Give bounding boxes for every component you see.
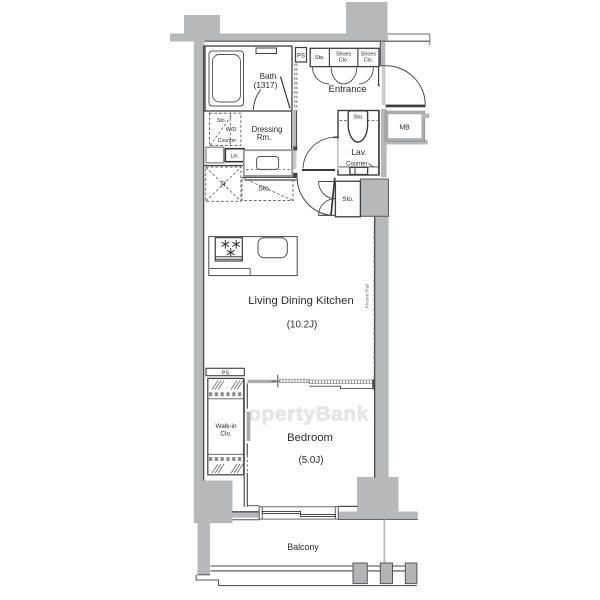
svg-text:Clo.: Clo. — [364, 58, 374, 64]
svg-text:(5.0J): (5.0J) — [298, 455, 323, 466]
svg-text:Sto.: Sto. — [217, 118, 226, 124]
svg-text:Lin.: Lin. — [231, 153, 239, 159]
svg-text:W/D: W/D — [226, 127, 237, 133]
svg-text:Walk-in: Walk-in — [215, 423, 237, 430]
svg-text:Rm.: Rm. — [257, 133, 271, 142]
svg-text:Living Dining Kitchen: Living Dining Kitchen — [248, 295, 354, 307]
svg-text:Sto.: Sto. — [342, 196, 353, 203]
svg-text:MB: MB — [399, 125, 410, 132]
svg-text:Counter: Counter — [218, 138, 237, 144]
svg-text:Balcony: Balcony — [287, 542, 319, 552]
svg-text:Bedroom: Bedroom — [287, 432, 333, 444]
svg-text:PS: PS — [222, 370, 230, 376]
svg-text:(1317): (1317) — [254, 81, 278, 90]
svg-text:PropertyBank: PropertyBank — [225, 403, 369, 426]
svg-text:R: R — [221, 182, 226, 189]
svg-text:PS: PS — [297, 54, 305, 60]
svg-text:Entrance: Entrance — [328, 84, 366, 95]
svg-text:Clo.: Clo. — [220, 431, 232, 438]
svg-text:Clo.: Clo. — [339, 58, 349, 64]
svg-text:Sto.: Sto. — [315, 55, 325, 61]
svg-text:(10.2J): (10.2J) — [287, 319, 318, 330]
svg-text:Sto.: Sto. — [258, 186, 271, 193]
svg-text:Lav.: Lav. — [351, 147, 366, 157]
svg-text:Picture Rail: Picture Rail — [364, 284, 370, 309]
svg-text:Sto.: Sto. — [353, 115, 364, 121]
